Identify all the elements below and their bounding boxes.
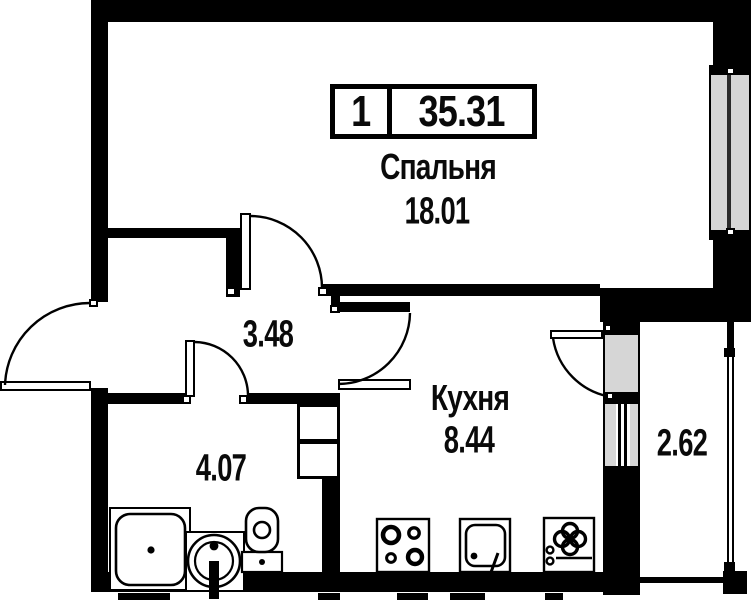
balcony-column [603, 478, 640, 595]
wall-bath-top-right [248, 393, 340, 404]
hinge-balcony-top [604, 324, 612, 332]
hinge-entrance [89, 299, 98, 307]
unit-total-area-value: 35.31 [419, 87, 505, 137]
bathroom-area: 4.07 [196, 448, 246, 491]
toilet [242, 508, 282, 572]
balcony-glazing-cap-bottom [724, 562, 735, 571]
balcony-bottom-wall [640, 577, 724, 583]
wall-top [91, 0, 751, 22]
wall-hall-top [107, 228, 240, 238]
unit-room-count-value: 1 [351, 87, 370, 137]
kitchen-door-leaf [338, 379, 411, 390]
balcony-window-line-1 [618, 404, 621, 466]
hinge-kitchen [330, 305, 339, 313]
bedroom-window [709, 65, 751, 240]
balcony-glazing-line-1 [727, 355, 729, 567]
entrance-door-arc [5, 303, 90, 385]
hinge-bathroom-right [239, 395, 248, 404]
balcony-unit-cap-bottom [603, 468, 640, 478]
wall-kitchen-divider [322, 284, 600, 296]
kitchen-label: Кухня [431, 377, 509, 419]
wall-stub-4 [450, 593, 485, 600]
wall-bottom [91, 572, 603, 592]
washing-machine [544, 518, 594, 572]
wall-kitchen-ledge [338, 302, 410, 312]
wall-right-upper [713, 0, 751, 65]
balcony-right-stub [727, 322, 734, 350]
kitchen-area: 8.44 [444, 420, 494, 463]
hinge-balcony-bottom [606, 392, 614, 400]
kitchen-door-arc [338, 313, 410, 384]
unit-badge: 1 35.31 [330, 84, 537, 139]
balcony-door-leaf [550, 330, 603, 339]
balcony-window-line-2 [624, 404, 627, 466]
unit-total-area: 35.31 [392, 89, 532, 134]
wall-kitchen-west [322, 479, 340, 572]
wall-bedroom-balcony [600, 288, 751, 322]
balcony-unit-window [603, 402, 640, 468]
bathroom-door-arc [195, 342, 248, 395]
balcony-door-window-unit [603, 322, 640, 478]
bedroom-label: Спальня [380, 146, 496, 188]
unit-room-count: 1 [335, 89, 392, 134]
wall-stub-1 [118, 593, 170, 600]
wall-stub-3 [397, 593, 428, 600]
bedroom-door-leaf [240, 213, 251, 290]
duct-shaft-lower [297, 441, 340, 479]
window-notch-top [726, 67, 735, 75]
wall-right-mid [713, 240, 751, 292]
balcony-area: 2.62 [657, 423, 707, 466]
wall-stub-2 [318, 593, 340, 600]
balcony-corner-block [723, 571, 747, 594]
bedroom-area: 18.01 [405, 191, 470, 234]
wall-left-upper [91, 0, 108, 302]
hallway-area: 3.48 [243, 314, 293, 357]
hinge-bathroom-left [182, 395, 191, 404]
bathroom-door-leaf [185, 340, 195, 397]
balcony-glazing-line-2 [732, 355, 734, 567]
duct-shaft-upper [297, 404, 340, 442]
wall-left-lower [91, 388, 108, 592]
balcony-door-panel [603, 333, 640, 394]
hinge-bedroom-left [226, 287, 236, 296]
stove [377, 519, 429, 572]
window-notch-bottom [726, 228, 735, 236]
bedroom-door-arc [251, 216, 322, 288]
wall-stub-5 [545, 593, 563, 600]
floor-plan: 1 35.31 Спальня 18.01 3.48 Кухня 8.44 4.… [0, 0, 754, 600]
window-glass-line [727, 67, 731, 238]
entrance-door-leaf [0, 381, 91, 391]
hinge-bedroom-right [318, 287, 328, 296]
wall-bath-top-left [108, 393, 185, 404]
